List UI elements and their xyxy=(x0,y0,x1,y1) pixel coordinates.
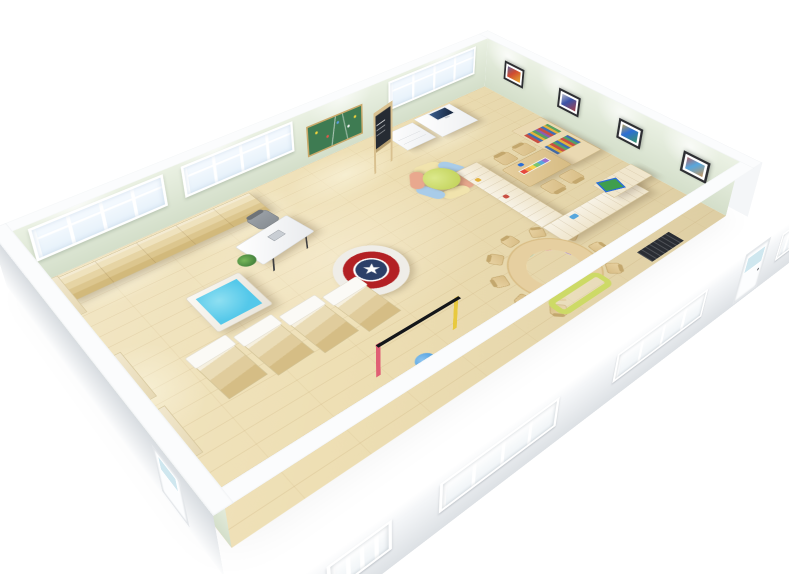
flower-stool xyxy=(409,171,425,188)
small-chair xyxy=(527,227,546,237)
wall-art-frame xyxy=(557,87,581,117)
wall-art-frame xyxy=(679,150,710,184)
door-knob xyxy=(756,267,758,271)
star-icon: ★ xyxy=(360,262,380,276)
window-group xyxy=(612,288,708,383)
chalk-marks xyxy=(376,119,385,126)
window-group xyxy=(326,519,392,574)
scene-viewport: ★ xyxy=(0,0,789,511)
window-group xyxy=(774,216,789,261)
wall-art-frame xyxy=(616,117,643,149)
entry-door xyxy=(732,236,771,305)
window-group xyxy=(438,396,559,513)
wall-art-frame xyxy=(503,60,524,88)
classroom-floorplan: ★ xyxy=(29,86,725,547)
door-glass xyxy=(742,244,766,275)
easel-blackboard xyxy=(373,100,392,174)
